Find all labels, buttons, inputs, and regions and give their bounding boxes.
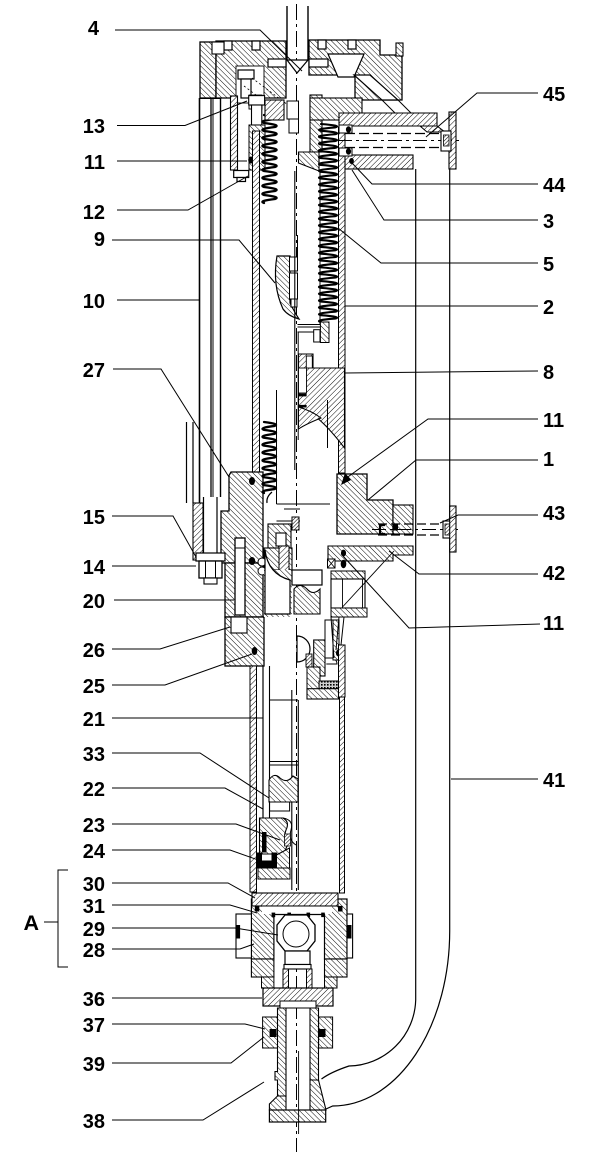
svg-text:27: 27 <box>83 360 105 382</box>
svg-text:41: 41 <box>543 770 565 792</box>
svg-text:14: 14 <box>83 557 106 579</box>
svg-text:9: 9 <box>94 229 105 251</box>
svg-text:13: 13 <box>83 116 105 138</box>
svg-text:29: 29 <box>83 919 105 941</box>
svg-text:43: 43 <box>543 503 565 525</box>
svg-text:24: 24 <box>83 841 106 863</box>
svg-text:20: 20 <box>83 591 105 613</box>
svg-text:45: 45 <box>543 84 565 106</box>
svg-text:36: 36 <box>83 989 105 1011</box>
svg-text:28: 28 <box>83 940 105 962</box>
svg-text:10: 10 <box>83 291 105 313</box>
svg-text:4: 4 <box>88 18 100 40</box>
svg-text:22: 22 <box>83 779 105 801</box>
svg-text:12: 12 <box>83 202 105 224</box>
svg-text:11: 11 <box>543 410 564 432</box>
svg-text:1: 1 <box>543 449 554 471</box>
svg-text:11: 11 <box>84 152 105 174</box>
svg-text:33: 33 <box>83 744 105 766</box>
svg-text:3: 3 <box>543 211 554 233</box>
svg-text:37: 37 <box>83 1015 105 1037</box>
svg-text:15: 15 <box>83 507 105 529</box>
svg-text:8: 8 <box>543 362 554 384</box>
svg-text:31: 31 <box>83 896 105 918</box>
svg-text:23: 23 <box>83 815 105 837</box>
svg-text:30: 30 <box>83 874 105 896</box>
svg-text:A: A <box>23 911 39 935</box>
svg-text:39: 39 <box>83 1054 105 1076</box>
svg-text:26: 26 <box>83 640 105 662</box>
svg-text:38: 38 <box>83 1111 105 1133</box>
svg-text:5: 5 <box>543 254 554 276</box>
svg-text:2: 2 <box>543 297 554 319</box>
svg-text:42: 42 <box>543 563 565 585</box>
svg-text:44: 44 <box>543 175 566 197</box>
svg-text:11: 11 <box>543 613 564 635</box>
svg-text:21: 21 <box>83 709 105 731</box>
svg-text:25: 25 <box>83 676 105 698</box>
